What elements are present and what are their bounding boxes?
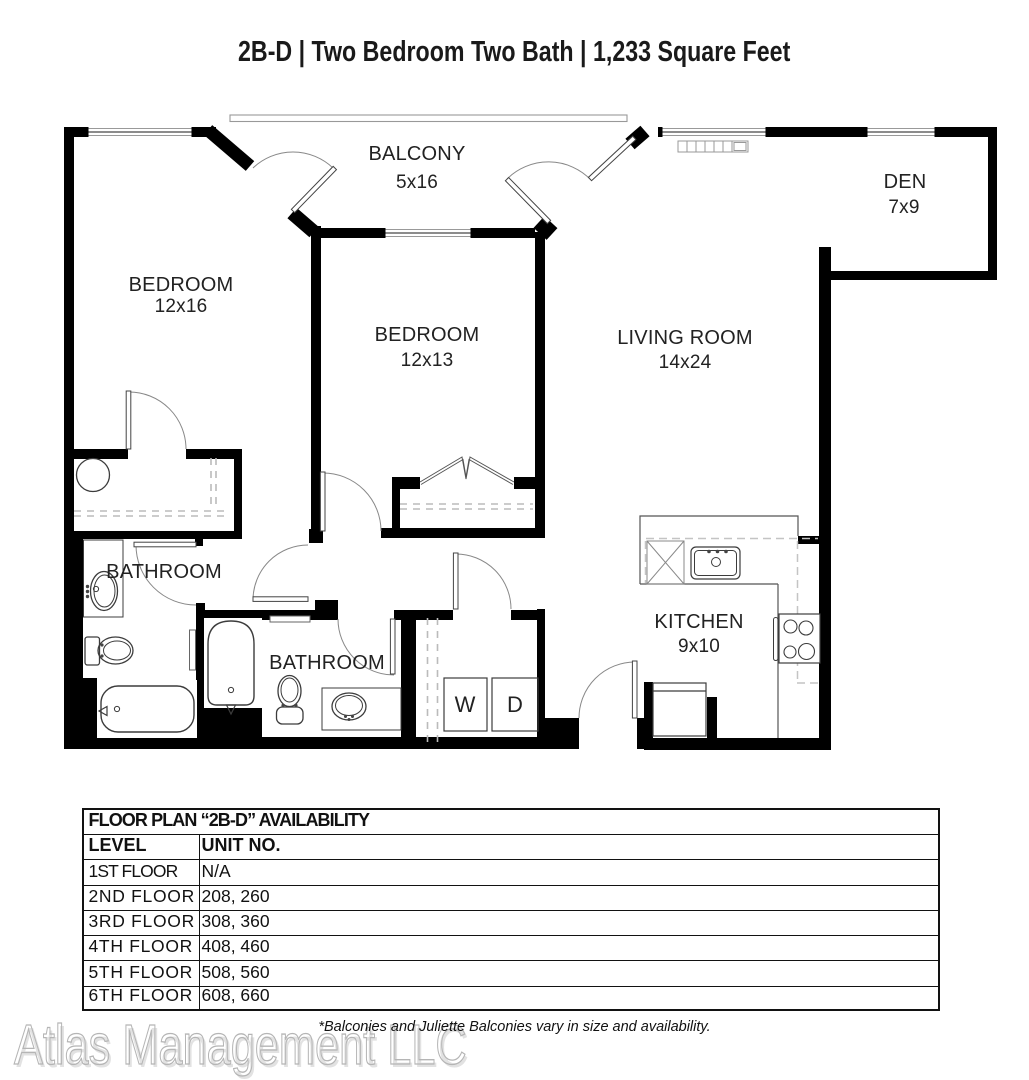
- svg-text:KITCHEN: KITCHEN: [654, 611, 743, 633]
- svg-text:7x9: 7x9: [888, 197, 919, 218]
- svg-text:BEDROOM: BEDROOM: [129, 274, 234, 296]
- svg-text:BEDROOM: BEDROOM: [375, 324, 480, 346]
- svg-text:12x16: 12x16: [155, 296, 208, 317]
- svg-text:BALCONY: BALCONY: [369, 143, 466, 165]
- svg-text:LIVING ROOM: LIVING ROOM: [617, 327, 753, 349]
- svg-text:5x16: 5x16: [396, 172, 438, 193]
- svg-text:BATHROOM: BATHROOM: [269, 652, 385, 674]
- svg-text:12x13: 12x13: [401, 350, 454, 371]
- svg-text:D: D: [507, 692, 523, 717]
- svg-text:9x10: 9x10: [678, 636, 720, 657]
- svg-text:DEN: DEN: [884, 171, 927, 193]
- svg-text:BATHROOM: BATHROOM: [106, 561, 222, 583]
- svg-text:14x24: 14x24: [659, 352, 712, 373]
- svg-text:W: W: [455, 692, 476, 717]
